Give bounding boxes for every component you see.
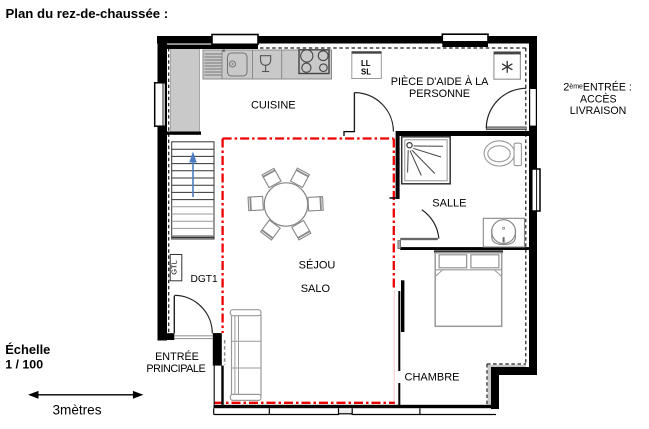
svg-text:DGT1: DGT1: [191, 274, 219, 285]
svg-text:Échelle: Échelle: [5, 342, 50, 357]
svg-text:ACCÈS: ACCÈS: [580, 92, 617, 105]
svg-text:CHAMBRE: CHAMBRE: [405, 372, 460, 384]
svg-text:3mètres: 3mètres: [52, 402, 101, 417]
svg-text:SL: SL: [361, 67, 371, 76]
svg-text:ENTRÉE: ENTRÉE: [155, 350, 199, 363]
svg-text:PERSONNE: PERSONNE: [409, 88, 470, 100]
svg-text:PRINCIPALE: PRINCIPALE: [146, 363, 205, 375]
svg-text:CUISINE: CUISINE: [251, 100, 296, 112]
svg-text:SALLE: SALLE: [432, 197, 466, 209]
svg-text:LIVRAISON: LIVRAISON: [570, 105, 627, 117]
svg-text:PIÈCE D'AIDE À LA: PIÈCE D'AIDE À LA: [391, 75, 489, 88]
svg-text:SALO: SALO: [301, 283, 331, 295]
svg-text:1 / 100: 1 / 100: [5, 357, 43, 371]
svg-text:GTL: GTL: [170, 260, 179, 275]
svg-text:SÉJOU: SÉJOU: [299, 259, 336, 272]
svg-text:Plan du rez-de-chaussée :: Plan du rez-de-chaussée :: [6, 6, 169, 21]
